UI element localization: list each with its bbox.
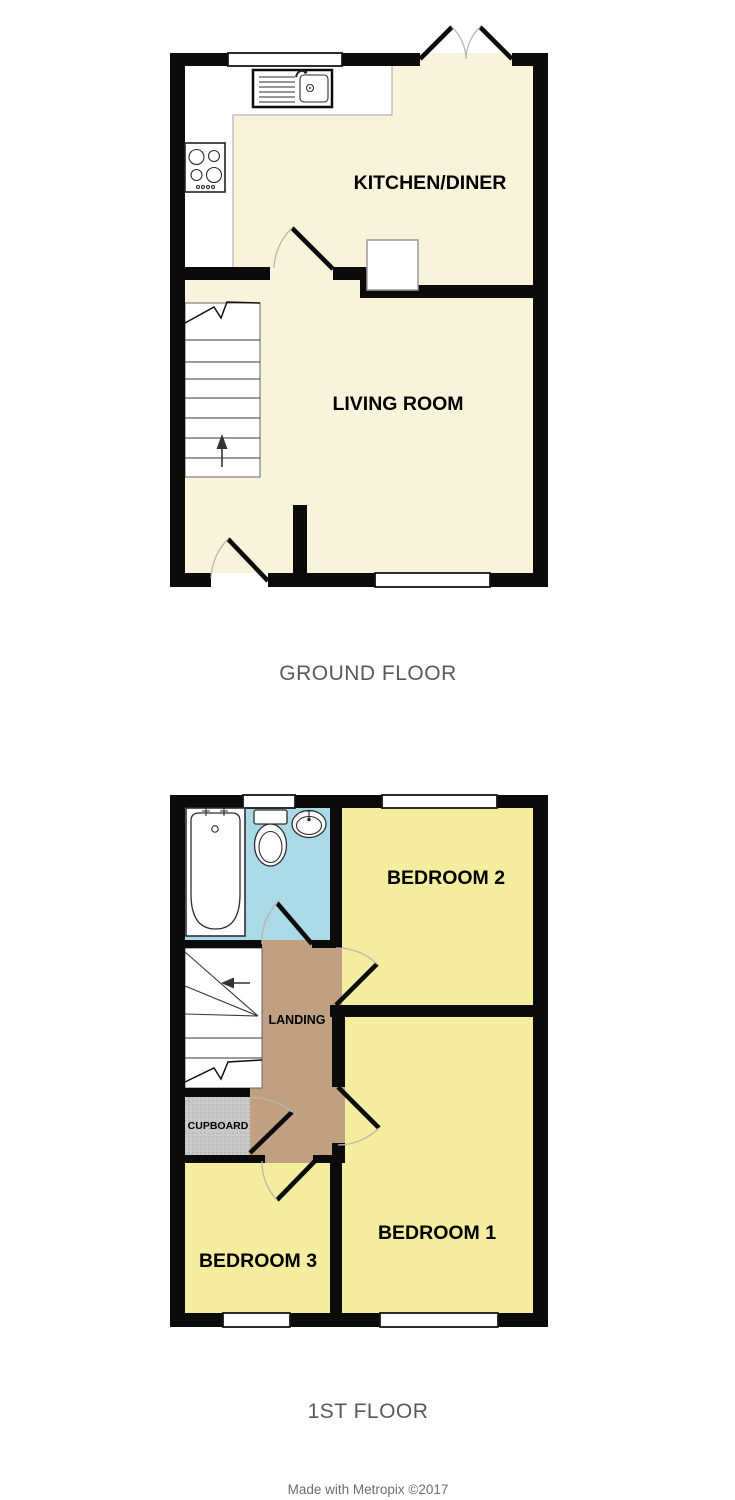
kitchen-sink: [253, 70, 332, 107]
landing-floor-bedroom1-doorway: [332, 1087, 345, 1143]
wall-bedroom3-top-right: [313, 1155, 345, 1163]
toilet: [254, 810, 287, 866]
wall-kitchen-divider-mid: [333, 267, 363, 280]
window-bedroom1-bottom: [380, 1313, 498, 1327]
basin: [292, 811, 326, 838]
window-bedroom3-bottom: [223, 1313, 290, 1327]
landing-label: LANDING: [269, 1013, 326, 1027]
first-floor-plan: BEDROOM 2 LANDING CUPBOARD BEDROOM 1 BED…: [170, 795, 548, 1423]
wall-bedroom1-left-upper: [332, 1017, 345, 1087]
window-living-bottom: [375, 573, 490, 587]
staircase-first: [185, 948, 262, 1088]
landing-floor-bedroom2-doorway: [330, 943, 342, 1005]
wall-bottom-left-seg: [170, 573, 211, 587]
hob-outline: [185, 143, 225, 192]
wall-hall-stub: [293, 505, 307, 573]
hob: [185, 143, 225, 192]
wall-bathroom-bottom: [170, 940, 262, 948]
basin-tap-head: [307, 818, 311, 822]
wall-left-first: [170, 795, 185, 1327]
first-floor-title: 1ST FLOOR: [308, 1400, 429, 1423]
floorplan-page: KITCHEN/DINER LIVING ROOM GROUND FLOOR: [0, 0, 735, 1500]
bedroom1-label: BEDROOM 1: [378, 1222, 496, 1244]
staircase-ground: [185, 302, 260, 477]
floorplan-canvas: KITCHEN/DINER LIVING ROOM GROUND FLOOR: [0, 0, 735, 1500]
window-kitchen-top: [228, 53, 342, 66]
bedroom3-label: BEDROOM 3: [199, 1250, 317, 1272]
sink-drain-dot: [309, 87, 311, 89]
bedroom1-floor: [332, 1017, 534, 1313]
stair-body-first: [185, 948, 262, 1088]
window-bedroom2-top: [382, 795, 497, 808]
wall-bedroom3-bedroom1-divider: [330, 1163, 342, 1313]
wall-bedroom2-left: [330, 808, 342, 945]
wall-cupboard-top: [170, 1088, 250, 1097]
wall-right: [533, 53, 548, 587]
living-room-label: LIVING ROOM: [332, 393, 463, 415]
wall-left: [170, 53, 185, 587]
metropix-credit: Made with Metropix ©2017: [288, 1482, 449, 1497]
wall-cupboard-bottom: [170, 1155, 265, 1163]
ground-floor-plan: KITCHEN/DINER LIVING ROOM GROUND FLOOR: [170, 27, 548, 685]
kitchen-storage-box: [367, 240, 418, 290]
window-bathroom-top: [243, 795, 295, 808]
toilet-cistern: [254, 810, 287, 824]
bedroom3-floor: [185, 1163, 330, 1313]
sink-tap-head: [304, 70, 307, 73]
wall-kitchen-divider-left: [170, 267, 270, 280]
bedroom2-floor: [342, 808, 534, 1005]
bathtub-inner: [191, 813, 240, 929]
bedroom2-label: BEDROOM 2: [387, 867, 505, 889]
wall-bedroom2-bedroom1-divider: [330, 1005, 534, 1017]
wall-right-first: [533, 795, 548, 1327]
cupboard-label: CUPBOARD: [188, 1120, 249, 1132]
kitchen-diner-label: KITCHEN/DINER: [354, 172, 507, 194]
ground-floor-title: GROUND FLOOR: [279, 662, 457, 685]
bathtub: [186, 808, 245, 936]
